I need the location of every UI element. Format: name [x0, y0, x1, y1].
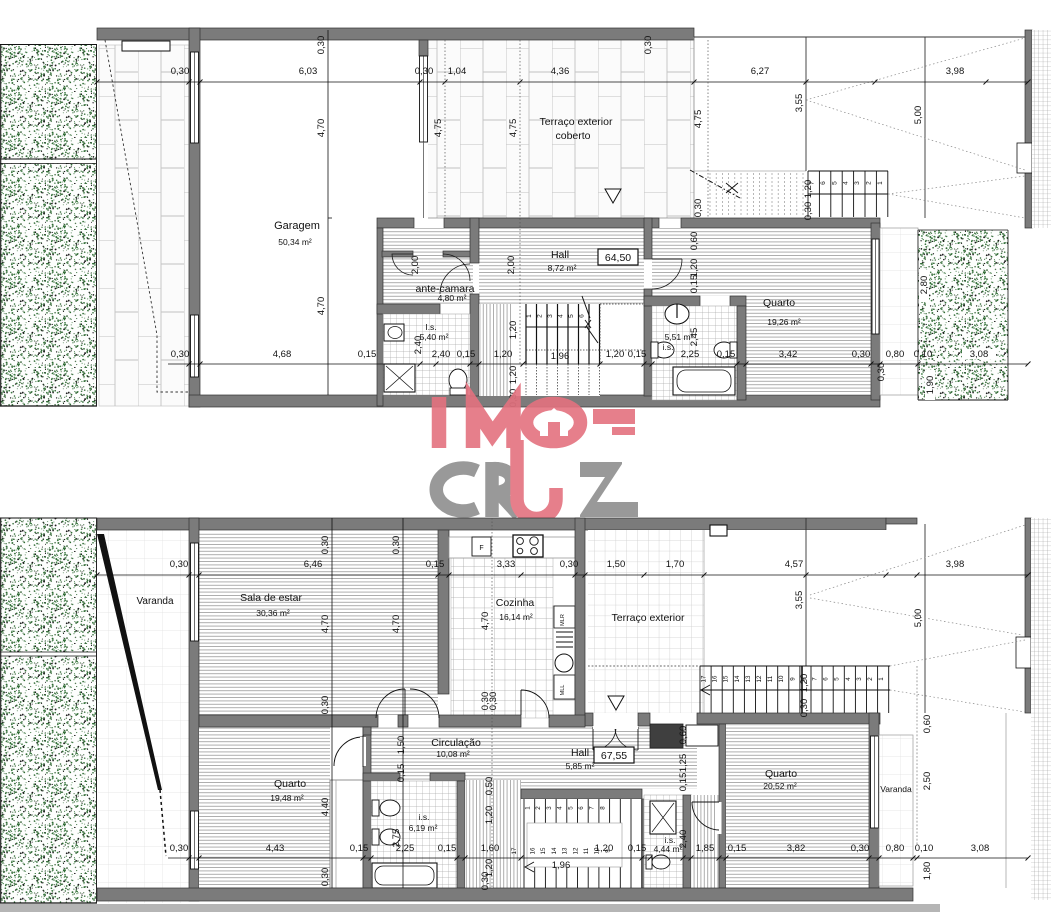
svg-text:0,30: 0,30	[488, 692, 499, 711]
svg-text:6,27: 6,27	[751, 66, 770, 77]
svg-text:5: 5	[834, 677, 841, 681]
svg-text:0,60: 0,60	[922, 715, 933, 734]
svg-text:1: 1	[878, 677, 885, 681]
svg-text:0,15: 0,15	[678, 773, 689, 792]
svg-text:5,00: 5,00	[913, 106, 924, 125]
svg-text:0,15: 0,15	[457, 349, 476, 360]
svg-text:Sala de estar: Sala de estar	[240, 592, 302, 604]
svg-text:5,85 m²: 5,85 m²	[566, 761, 595, 771]
svg-text:Hall: Hall	[551, 249, 569, 261]
svg-text:16,14 m²: 16,14 m²	[499, 612, 533, 622]
svg-text:Terraço exterior: Terraço exterior	[612, 612, 685, 624]
svg-text:4,43: 4,43	[266, 843, 285, 854]
svg-text:2: 2	[535, 806, 542, 810]
svg-text:1,20: 1,20	[508, 366, 519, 385]
svg-text:0,15: 0,15	[396, 764, 407, 783]
svg-text:0,30: 0,30	[852, 349, 871, 360]
svg-text:0,30: 0,30	[171, 349, 190, 360]
svg-text:Circulação: Circulação	[431, 737, 481, 749]
svg-text:1,20: 1,20	[606, 349, 625, 360]
svg-text:3,98: 3,98	[946, 559, 965, 570]
svg-text:13: 13	[562, 847, 569, 854]
svg-text:11: 11	[583, 847, 590, 854]
svg-text:16: 16	[712, 675, 719, 682]
svg-text:4,70: 4,70	[320, 615, 331, 634]
svg-text:1,20: 1,20	[494, 349, 513, 360]
svg-text:i.s.: i.s.	[419, 812, 430, 822]
svg-text:2: 2	[866, 181, 873, 185]
svg-text:3,08: 3,08	[971, 843, 990, 854]
svg-text:4,40: 4,40	[320, 798, 331, 817]
svg-text:2,80: 2,80	[919, 276, 930, 295]
svg-text:19,48 m²: 19,48 m²	[270, 793, 304, 803]
svg-text:1: 1	[525, 806, 532, 810]
svg-text:4: 4	[557, 806, 564, 810]
svg-text:6: 6	[578, 806, 585, 810]
svg-text:50,34 m²: 50,34 m²	[278, 237, 312, 247]
svg-text:1,96: 1,96	[551, 351, 570, 362]
svg-text:0,15: 0,15	[358, 349, 377, 360]
svg-text:0,15: 0,15	[717, 349, 736, 360]
svg-text:0,15: 0,15	[438, 843, 457, 854]
svg-text:1,20: 1,20	[484, 806, 495, 825]
svg-text:19,26 m²: 19,26 m²	[767, 317, 801, 327]
svg-text:0,30: 0,30	[876, 363, 887, 382]
svg-text:2: 2	[867, 677, 874, 681]
svg-text:6: 6	[579, 314, 586, 318]
svg-text:1,20: 1,20	[689, 259, 700, 278]
svg-text:MLR: MLR	[560, 614, 566, 626]
svg-text:11: 11	[767, 675, 774, 682]
svg-text:1,20: 1,20	[799, 674, 810, 693]
svg-text:3,55: 3,55	[794, 591, 805, 610]
svg-text:4: 4	[558, 314, 565, 318]
svg-text:Hall: Hall	[571, 747, 589, 759]
svg-text:Varanda: Varanda	[880, 784, 912, 794]
svg-text:coberto: coberto	[555, 130, 590, 142]
svg-text:0,30: 0,30	[171, 66, 190, 77]
svg-text:3,55: 3,55	[794, 94, 805, 113]
svg-text:8,72 m²: 8,72 m²	[548, 263, 577, 273]
svg-text:3: 3	[546, 806, 553, 810]
svg-text:0,30: 0,30	[799, 699, 810, 718]
svg-text:Varanda: Varanda	[136, 596, 174, 607]
svg-text:9: 9	[789, 677, 796, 681]
svg-text:6,19 m²: 6,19 m²	[409, 823, 438, 833]
svg-text:17: 17	[701, 675, 708, 682]
svg-text:1,50: 1,50	[607, 559, 626, 570]
svg-text:4,57: 4,57	[785, 559, 804, 570]
svg-text:20,52 m²: 20,52 m²	[763, 781, 797, 791]
svg-text:6: 6	[820, 181, 827, 185]
svg-text:3,82: 3,82	[787, 843, 806, 854]
svg-text:0,60: 0,60	[689, 232, 700, 251]
svg-text:4,36: 4,36	[551, 66, 570, 77]
svg-text:7: 7	[589, 806, 596, 810]
svg-text:Cozinha: Cozinha	[496, 597, 535, 609]
svg-text:6: 6	[823, 677, 830, 681]
svg-text:3,33: 3,33	[497, 559, 516, 570]
svg-text:0,30: 0,30	[316, 36, 327, 55]
svg-text:1,80: 1,80	[922, 862, 933, 881]
svg-text:0,30: 0,30	[415, 66, 434, 77]
svg-text:0,50: 0,50	[484, 777, 495, 796]
svg-text:4,75: 4,75	[508, 119, 519, 138]
svg-text:14: 14	[551, 847, 558, 854]
svg-text:3,42: 3,42	[779, 349, 798, 360]
svg-text:10: 10	[778, 675, 785, 682]
svg-text:1,60: 1,60	[481, 843, 500, 854]
svg-text:1,20: 1,20	[803, 180, 814, 199]
svg-text:0,15: 0,15	[628, 349, 647, 360]
svg-text:1,04: 1,04	[448, 66, 467, 77]
svg-text:2,50: 2,50	[922, 772, 933, 791]
svg-text:5,51 m²: 5,51 m²	[665, 332, 694, 342]
svg-text:1,70: 1,70	[666, 559, 685, 570]
svg-text:0,15: 0,15	[728, 843, 747, 854]
svg-text:1,90: 1,90	[925, 376, 936, 395]
svg-text:1: 1	[526, 314, 533, 318]
svg-text:0,60: 0,60	[678, 726, 689, 745]
svg-text:16: 16	[530, 847, 537, 854]
svg-text:Quarto: Quarto	[765, 768, 797, 780]
svg-text:8: 8	[599, 806, 606, 810]
svg-text:4,80 m²: 4,80 m²	[438, 293, 467, 303]
svg-text:F: F	[479, 545, 483, 552]
svg-text:0,30: 0,30	[480, 872, 491, 891]
svg-text:0,30: 0,30	[643, 36, 654, 55]
svg-text:5: 5	[567, 806, 574, 810]
svg-text:5: 5	[831, 181, 838, 185]
svg-text:17: 17	[511, 847, 518, 854]
svg-text:0,10: 0,10	[915, 843, 934, 854]
svg-text:12: 12	[572, 847, 579, 854]
svg-text:Terraço exterior: Terraço exterior	[540, 116, 613, 128]
svg-text:2,75: 2,75	[391, 829, 402, 848]
svg-text:3: 3	[547, 314, 554, 318]
svg-text:1,20: 1,20	[508, 321, 519, 340]
svg-text:Quarto: Quarto	[763, 297, 795, 309]
svg-text:0,30: 0,30	[851, 843, 870, 854]
svg-text:2,00: 2,00	[506, 256, 517, 275]
svg-text:0,80: 0,80	[886, 349, 905, 360]
svg-text:6,46: 6,46	[304, 559, 323, 570]
svg-text:4,70: 4,70	[391, 615, 402, 634]
svg-text:0,30: 0,30	[560, 559, 579, 570]
svg-text:13: 13	[745, 675, 752, 682]
svg-text:64,50: 64,50	[605, 252, 631, 264]
svg-text:1,20: 1,20	[595, 843, 614, 854]
svg-text:4,44 m²: 4,44 m²	[654, 844, 683, 854]
svg-text:7: 7	[812, 677, 819, 681]
svg-text:1,25: 1,25	[678, 754, 689, 773]
svg-text:MLL: MLL	[560, 685, 566, 696]
svg-text:1,96: 1,96	[552, 860, 571, 871]
svg-text:4,68: 4,68	[273, 349, 292, 360]
svg-text:12: 12	[756, 675, 763, 682]
svg-text:0,10: 0,10	[914, 349, 933, 360]
svg-text:0,15: 0,15	[350, 843, 369, 854]
svg-text:4,70: 4,70	[316, 119, 327, 138]
svg-text:15: 15	[540, 847, 547, 854]
svg-text:14: 14	[734, 675, 741, 682]
svg-text:0,30: 0,30	[803, 202, 814, 221]
svg-text:2,40: 2,40	[432, 349, 451, 360]
svg-text:67,55: 67,55	[601, 750, 627, 762]
svg-text:10,08 m²: 10,08 m²	[436, 749, 470, 759]
svg-text:4,75: 4,75	[693, 110, 704, 129]
svg-text:5: 5	[568, 314, 575, 318]
svg-text:0,30: 0,30	[320, 536, 331, 555]
svg-text:4,75: 4,75	[433, 119, 444, 138]
svg-text:0,15: 0,15	[689, 275, 700, 294]
svg-text:Garagem: Garagem	[274, 220, 320, 232]
svg-text:3: 3	[856, 677, 863, 681]
svg-text:2,25: 2,25	[681, 349, 700, 360]
svg-text:0,30: 0,30	[320, 696, 331, 715]
svg-text:1,50: 1,50	[396, 736, 407, 755]
svg-text:3,98: 3,98	[946, 66, 965, 77]
svg-text:4: 4	[843, 181, 850, 185]
svg-text:30,36 m²: 30,36 m²	[256, 608, 290, 618]
svg-text:2: 2	[537, 314, 544, 318]
svg-text:4,70: 4,70	[316, 297, 327, 316]
svg-text:5,00: 5,00	[913, 609, 924, 628]
svg-text:0,30: 0,30	[170, 559, 189, 570]
svg-text:0,15: 0,15	[426, 559, 445, 570]
svg-text:3: 3	[854, 181, 861, 185]
svg-text:1: 1	[877, 181, 884, 185]
svg-text:0,80: 0,80	[886, 843, 905, 854]
svg-text:4: 4	[845, 677, 852, 681]
svg-text:0,30: 0,30	[391, 536, 402, 555]
svg-text:2,00: 2,00	[410, 256, 421, 275]
svg-text:1,85: 1,85	[696, 843, 715, 854]
svg-text:4,70: 4,70	[480, 612, 491, 631]
svg-text:Quarto: Quarto	[274, 778, 306, 790]
svg-text:0,15: 0,15	[628, 843, 647, 854]
svg-text:I.s.: I.s.	[425, 322, 436, 332]
svg-text:6,03: 6,03	[299, 66, 318, 77]
svg-text:3,08: 3,08	[970, 349, 989, 360]
svg-text:0,30: 0,30	[320, 868, 331, 887]
svg-text:i.s.: i.s.	[663, 342, 674, 352]
svg-text:0,30: 0,30	[693, 199, 704, 218]
svg-text:0,30: 0,30	[170, 843, 189, 854]
svg-text:15: 15	[723, 675, 730, 682]
svg-text:5,40 m²: 5,40 m²	[420, 332, 449, 342]
